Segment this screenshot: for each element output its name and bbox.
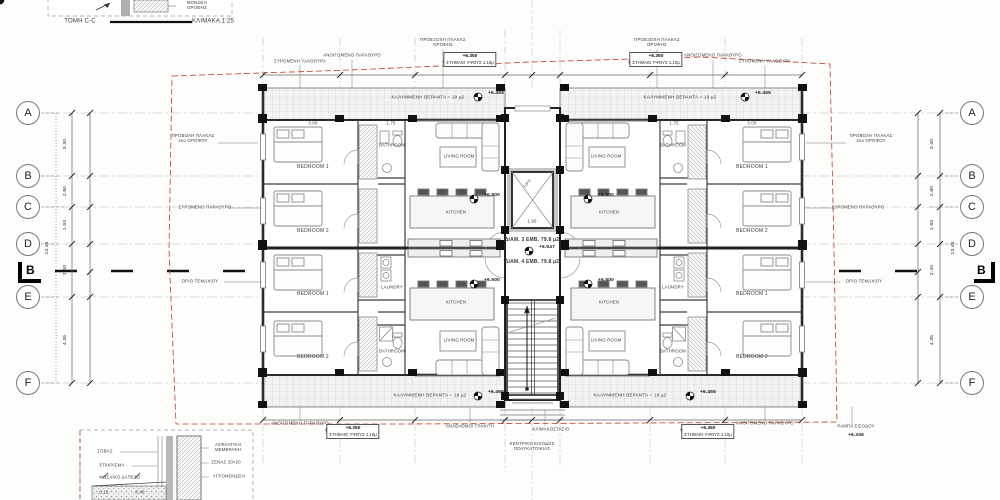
dim-bedroom-l: 3.00 [308, 122, 317, 127]
grid-bubble-f-right: F [960, 371, 984, 395]
annotation-plot-boundary-l: ΟΡΙΟ ΤΕΜΑΧΙΟΥ [182, 280, 219, 285]
dim-lift: 1.90 [527, 220, 536, 225]
parapet-note-bottom-left: +6.350 ΣΤΗΘΑΙΟ ΥΨΟΥΣ 1.10μ [326, 424, 379, 439]
section-title: ΤΟΜΗ C-C [64, 19, 96, 26]
detail-label-sovas: ΣΟΒΑΣ [97, 450, 112, 455]
grid-bubble-c-right: C [960, 195, 984, 219]
room-label-bedroom2-ll: BEDROOM 2 [297, 355, 329, 361]
apartment-label-2: ΔΙΑΜ. 4 ΕΜΒ. 79.8 μ2 [505, 260, 560, 266]
annotation-roof-overhang-r: ΠΡΟΕΞΟΧΗ ΠΛΑΚΑΣ ΟΡΟΦΗΣ [631, 38, 683, 48]
dim-cd-right: 1.93 [930, 220, 936, 230]
level-veranda-tl: +6.455 [488, 91, 504, 97]
living-upper [436, 123, 499, 171]
annotation-sliding-door-tl: ΣΥΡΟΜΕΝΗ ΥΑΛΟΘΥΡΑ [274, 60, 326, 65]
annotation-window-tl: ΑΝΟΙΓΟΜΕΝΟ ΠΑΡΑΘΥΡΟ [323, 54, 381, 59]
room-label-bedroom2-lr: BEDROOM 2 [736, 355, 768, 361]
grid-bubble-c-left: C [16, 195, 40, 219]
room-label-bath-ur: BATHROOM [660, 144, 686, 149]
level-living-ur: +6.500 [598, 193, 614, 199]
parapet-note-top-left: +6.350 ΣΤΗΘΑΙΟ ΥΨΟΥΣ 1.10μ [443, 52, 496, 67]
room-label-bedroom2-ul: BEDROOM 2 [297, 229, 329, 235]
dim-bc-left: 2.80 [63, 186, 69, 196]
floor-plan-sheet: ΤΟΜΗ C-C ΚΛΙΜΑΚΑ 1:25 ΜΟΝΩΣΗ ΟΡΟΦΗΣ A B … [0, 0, 1000, 500]
annotation-window-bl: ΑΝΟΙΓΟΜΕΝΟ ΠΑΡΑΘΥΡΟ [271, 422, 329, 427]
annotation-granite-steps: ΑΝΑΒΑΘΜΟΙ ΓΡΑΝΙΤΗ [446, 425, 494, 430]
grid-bubble-a-right: A [960, 101, 984, 125]
room-label-laundry-r: LAUNDRY [662, 286, 684, 291]
veranda-top [263, 88, 505, 120]
section-scale: ΚΛΙΜΑΚΑ 1:25 [192, 19, 234, 26]
dim-cd-left: 1.93 [63, 220, 69, 230]
parapet-text-tr: ΣΤΗΘΑΙΟ ΥΨΟΥΣ 1.10μ [632, 60, 679, 65]
room-label-living-lr: LIVING ROOM [591, 339, 622, 344]
level-entrance: +6.345 [848, 433, 864, 439]
dim-bath-r: 1.75 [669, 122, 678, 127]
parapet-note-bottom-right: +6.350 ΣΤΗΘΑΙΟ ΥΨΟΥΣ 1.10μ [681, 424, 734, 439]
dim-total-right: 13.45 [951, 241, 957, 254]
room-label-kitchen-ll: KITCHEN [446, 301, 466, 306]
veranda-label-top-left: ΚΑΛΥΜΜΕΝΗ ΒΕΡΑΝΤΑ = 19 μ2 [392, 94, 465, 99]
detail-dim-015: 0.15 [99, 491, 108, 496]
detail-label-floor: ΜΩΣΑΪΚΟ ΔΑΠΕΔΟ [98, 476, 142, 481]
veranda-label-bottom-left: ΚΑΛΥΜΜΕΝΗ ΒΕΡΑΝΤΑ = 19 μ2 [394, 392, 467, 397]
annotation-sliding-door-tr: ΣΥΡΟΜΕΝΗ ΥΑΛΟΘΥΡΑ [739, 60, 791, 65]
room-label-bedroom1-ur: BEDROOM 1 [736, 165, 768, 171]
detail-label-senaz: ΣΕΝΑΖ 20×20 [211, 461, 241, 466]
room-label-bedroom2-ur: BEDROOM 2 [736, 229, 768, 235]
room-label-bath-lr: BATHROOM [660, 350, 686, 355]
grid-bubble-d-left: D [16, 232, 40, 256]
room-label-living-ul: LIVING ROOM [444, 155, 475, 160]
room-label-bath-ll: BATHROOM [379, 350, 405, 355]
room-label-living-ur: LIVING ROOM [591, 155, 622, 160]
section-marker-left: B [26, 263, 35, 277]
veranda-label-bottom-right: ΚΑΛΥΜΜΕΝΗ ΒΕΡΑΝΤΑ = 19 μ2 [594, 392, 667, 397]
apartment-label-1: ΔΙΑΜ. 3 ΕΜΒ. 79.8 μ2 [505, 238, 560, 244]
room-label-bath-ul: BATHROOM [379, 144, 405, 149]
annotation-sliding-window-r: ΣΥΡΟΜΕΝΟ ΠΑΡΑΘΥΡΟ [832, 206, 885, 211]
level-veranda-tr: +6.455 [755, 91, 771, 97]
room-label-bedroom1-ll: BEDROOM 1 [297, 292, 329, 298]
dim-ab-left: 3.30 [63, 139, 69, 149]
room-label-kitchen-lr: KITCHEN [599, 301, 619, 306]
level-living-ll: +6.500 [484, 278, 500, 284]
right-unit [560, 84, 807, 408]
grid-bubble-d-right: D [960, 232, 984, 256]
annotation-sliding-window-l: ΣΥΡΟΜΕΝΟ ΠΑΡΑΘΥΡΟ [179, 206, 232, 211]
room-label-living-ll: LIVING ROOM [444, 339, 475, 344]
annotation-slab-projection-l: ΠΡΟΒΟΛΗ ΠΛΑΚΑΣ 2ου ΟΡΟΦΟΥ [170, 134, 216, 144]
dim-de-left: 2.40 [63, 265, 69, 275]
detail-label-epixrisma: ΕΠΙΧΡΙΣΜΑ [100, 464, 125, 469]
detail-label-membrane: ΑΣΦΑΛΤΙΚΗ ΜΕΜΒΡΑΝΗ [209, 443, 247, 453]
parapet-text-tl: ΣΤΗΘΑΙΟ ΥΨΟΥΣ 1.10μ [446, 60, 493, 65]
grid-bubble-e-right: E [960, 285, 984, 309]
level-landing: +6.547 [539, 245, 555, 251]
grid-bubble-e-left: E [16, 285, 40, 309]
room-label-laundry-l: LAUNDRY [381, 286, 403, 291]
section-marker-right: B [977, 263, 986, 277]
section-note: ΜΟΝΩΣΗ ΟΡΟΦΗΣ [177, 1, 217, 11]
annotation-slab-projection-r: ΠΡΟΒΟΛΗ ΠΛΑΚΑΣ 2ου ΟΡΟΦΟΥ [848, 134, 894, 144]
dim-bath-l: 1.75 [386, 122, 395, 127]
annotation-stair-core: ΚΛΙΜΑΚΟΣΤΑΣΙΟ [532, 428, 569, 433]
annotation-ramp: ΡΑΜΠΑ ΕΙΣΟΔΟΥ [837, 425, 874, 430]
grid-bubble-f-left: F [16, 371, 40, 395]
parapet-text-br: ΣΤΗΘΑΙΟ ΥΨΟΥΣ 1.10μ [684, 432, 731, 437]
veranda-bottom [263, 375, 505, 407]
dim-bedroom-r: 3.00 [747, 122, 756, 127]
grid-bubble-b-right: B [960, 164, 984, 188]
dim-ef-left: 4.35 [63, 335, 69, 345]
parapet-text-bl: ΣΤΗΘΑΙΟ ΥΨΟΥΣ 1.10μ [329, 432, 376, 437]
annotation-window-br: ΑΝΟΙΓΟΜΕΝΟ ΠΑΡΑΘΥΡΟ [736, 422, 794, 427]
living-lower [436, 327, 499, 375]
veranda-label-top-right: ΚΑΛΥΜΜΕΝΗ ΒΕΡΑΝΤΑ = 19 μ2 [644, 94, 717, 99]
dim-de-right: 2.40 [930, 265, 936, 275]
level-veranda-bl: +6.455 [488, 390, 504, 396]
parapet-note-top-right: +6.350 ΣΤΗΘΑΙΟ ΥΨΟΥΣ 1.10μ [629, 52, 682, 67]
annotation-plot-boundary-r: ΟΡΙΟ ΤΕΜΑΧΙΟΥ [846, 280, 883, 285]
room-label-bedroom1-ul: BEDROOM 1 [297, 165, 329, 171]
detail-dim-040: 0.40 [135, 491, 144, 496]
dim-total-left: 13.45 [45, 241, 51, 254]
level-living-lr: +6.500 [598, 278, 614, 284]
left-unit [258, 84, 505, 408]
dim-ab-right: 3.30 [930, 139, 936, 149]
room-label-bedroom1-lr: BEDROOM 1 [736, 292, 768, 298]
grid-bubble-b-left: B [16, 164, 40, 188]
annotation-roof-overhang-l: ΠΡΟΕΞΟΧΗ ΠΛΑΚΑΣ ΟΡΟΦΗΣ [417, 38, 469, 48]
dim-ef-right: 4.35 [930, 335, 936, 345]
annotation-entrance: ΚΕΝΤΡΙΚΗ ΕΙΣΟΔΟΣ ΠΟΛΥΚΑΤΟΙΚΙΑΣ [503, 442, 561, 452]
grid-bubble-a-left: A [16, 101, 40, 125]
level-veranda-br: +6.455 [700, 390, 716, 396]
level-living-ul: +6.500 [484, 193, 500, 199]
staircase [507, 300, 558, 395]
dim-bc-right: 2.80 [930, 186, 936, 196]
detail-label-waterproof: ΥΓΡΟΜΟΝΩΣΗ [213, 475, 245, 480]
room-label-kitchen-ur: KITCHEN [599, 211, 619, 216]
annotation-window-tr: ΑΝΟΙΓΟΜΕΝΟ ΠΑΡΑΘΥΡΟ [684, 54, 742, 59]
room-label-kitchen-ul: KITCHEN [446, 211, 466, 216]
